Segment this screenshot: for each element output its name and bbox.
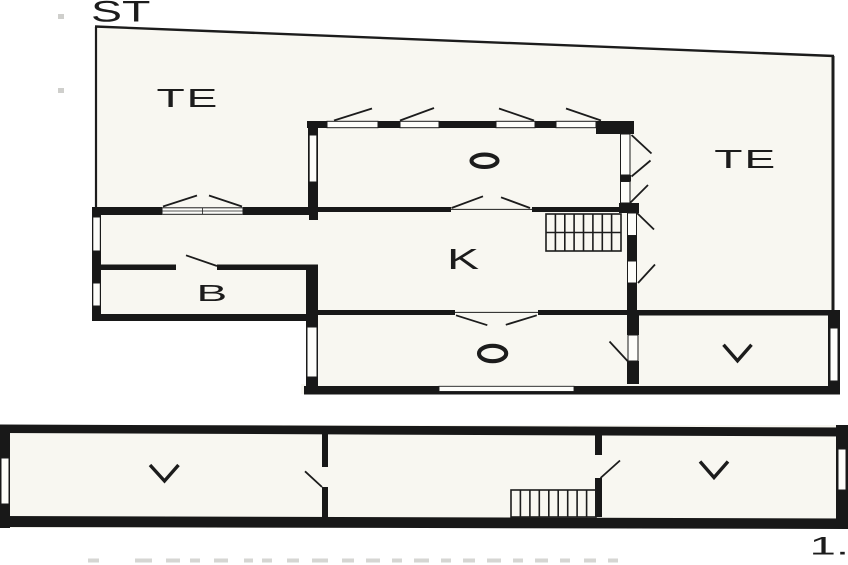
svg-text:TE: TE	[714, 144, 777, 173]
svg-text:B: B	[197, 280, 228, 306]
svg-text:ST: ST	[91, 0, 150, 28]
svg-text:1.: 1.	[810, 533, 848, 561]
svg-text:K: K	[447, 243, 480, 275]
svg-text:TE: TE	[157, 83, 220, 112]
